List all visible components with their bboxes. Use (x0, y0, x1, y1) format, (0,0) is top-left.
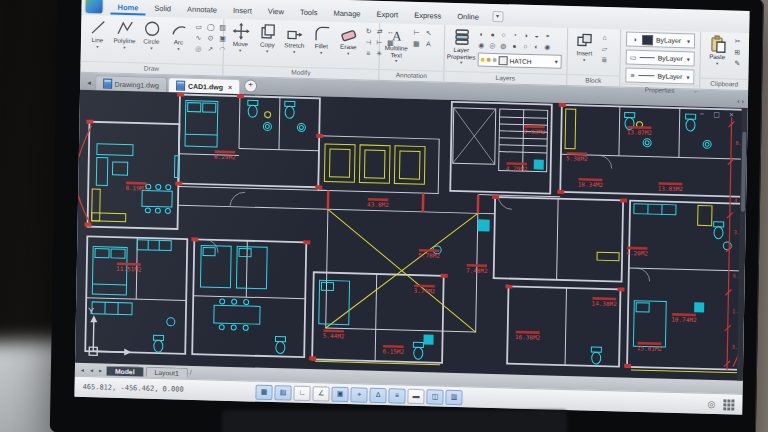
color-swatch (642, 34, 653, 44)
layout-nav-first-icon[interactable]: ◂ (79, 366, 86, 373)
panel-properties: ◑ByLayer▼▭ByLayer▼≡ByLayer▼ Properties ⌐ (620, 29, 701, 88)
match-properties-icon[interactable]: ✎ (732, 58, 743, 68)
status-toggle-group: ▦▤∟∠▣⌖∆≡▬◫▥ (256, 384, 463, 405)
snap-toggle[interactable]: ▦ (256, 384, 273, 399)
chevron-down-icon: ▾ (293, 50, 295, 54)
chevron-down-icon: ▾ (150, 46, 152, 50)
arc-button[interactable]: Arc▾ (165, 19, 193, 64)
layer-dropdown[interactable]: HATCH ▼ (478, 53, 562, 69)
dwg-file-icon (176, 80, 185, 90)
application-window: HomeSolidAnnotateInsertViewToolsManageEx… (74, 0, 749, 415)
layer-walk-icon[interactable]: ◍ (498, 41, 509, 51)
panel-label-block: Block (567, 74, 619, 86)
panel-clipboard: Paste▾ ✂⊞✎ Clipboard (700, 32, 749, 90)
panel-label-properties: Properties ⌐ (620, 83, 699, 95)
linetype-swatch (639, 57, 654, 58)
spline-icon[interactable]: ∿ (193, 33, 204, 43)
cut-icon[interactable]: ✂ (732, 36, 743, 46)
donut-icon[interactable]: ◎ (193, 44, 204, 54)
layer-thaw-icon[interactable]: ◓ (542, 31, 553, 41)
ellipse-icon[interactable]: ◯ (205, 22, 216, 32)
chevron-down-icon: ▼ (685, 74, 690, 80)
rectangle-icon[interactable]: ▭ (193, 22, 204, 32)
menu-tab-annotate[interactable]: Annotate (180, 2, 224, 17)
dyn-toggle[interactable]: ≡ (389, 388, 406, 403)
area-label: 8.93M2 (523, 128, 545, 136)
chevron-down-icon: ▾ (583, 58, 585, 62)
panel-annotation: AMultiline Text▾ ⊢↖▦A Annotation (379, 23, 445, 82)
chevron-down-icon: ▾ (395, 59, 397, 63)
layout-tab-model[interactable]: Model (106, 365, 144, 376)
chevron-down-icon: ▾ (347, 52, 349, 56)
current-layer-name: HATCH (510, 57, 532, 65)
menu-tab-tools[interactable]: Tools (293, 6, 325, 21)
layer-merge-icon[interactable]: ○ (520, 42, 531, 52)
panel-label-clipboard: Clipboard (700, 78, 748, 90)
panel-layers: Layer Properties▾ ◐●○◔◑◒◓◉◎◍●○◐◉ HATCH ▼ (444, 25, 568, 85)
layer-previous-icon[interactable]: ◎ (487, 41, 498, 51)
circle-icon (143, 19, 161, 37)
new-document-button[interactable]: + (244, 79, 257, 92)
rotate-icon[interactable]: ↻ (363, 26, 374, 36)
furniture-cyan-layer (91, 96, 733, 367)
leader-icon[interactable]: ↖ (423, 28, 434, 38)
area-label: 4.29M2 (506, 165, 528, 173)
area-label: 5.44M2 (323, 332, 345, 340)
area-labels-layer: 43.8M28.93M213.07M25.38M24.29M218.34M213… (115, 112, 701, 363)
dwg-file-icon (103, 78, 112, 88)
laptop-hinge (222, 410, 567, 432)
svg-text:A: A (391, 28, 401, 43)
area-label: 5.38M2 (566, 154, 588, 162)
area-label: 8.19M2 (125, 184, 147, 192)
area-label: 43.8M2 (367, 200, 389, 208)
polyline-icon (116, 19, 134, 37)
copy-icon (258, 23, 276, 41)
drawing-canvas[interactable]: − ◻ × (75, 90, 748, 381)
table-icon[interactable]: ▦ (411, 39, 422, 49)
ribbon-options-icon[interactable]: ▾ (492, 11, 503, 22)
layer-state-icon[interactable]: ● (509, 41, 520, 51)
layer-bulb-icon (481, 58, 485, 62)
chevron-down-icon: ▾ (96, 45, 98, 49)
panel-draw: Line▾Polyline▾Circle▾Arc▾ ▭◯▨∿⊙▣◎↗◠ Draw (80, 15, 224, 76)
line-icon (89, 18, 107, 36)
menu-tab-export[interactable]: Export (369, 8, 405, 23)
construction-line-icon[interactable]: ↗ (205, 44, 216, 54)
ortho-toggle[interactable]: ∟ (294, 385, 311, 400)
ducs-toggle[interactable]: ∆ (370, 387, 387, 402)
menu-tab-insert[interactable]: Insert (226, 4, 259, 19)
chevron-down-icon: ▾ (177, 47, 179, 51)
chevron-down-icon: ▼ (686, 56, 691, 62)
insert-button[interactable]: Insert▾ (570, 30, 598, 75)
area-label: 10.74M2 (671, 316, 697, 324)
app-logo-icon[interactable] (85, 0, 102, 13)
area-label: 7.48M2 (466, 266, 488, 274)
linetype-icon: ▭ (630, 53, 637, 62)
area-label: 18.34M2 (578, 180, 604, 188)
area-label: 3.74M2 (414, 287, 436, 295)
polar-toggle[interactable]: ∠ (313, 386, 330, 401)
fixtures-yellow-layer (89, 96, 744, 373)
tab-nav-left-icon[interactable]: ◂ (84, 79, 94, 90)
etrack-toggle[interactable]: ⌖ (351, 387, 368, 402)
layer-color-swatch (499, 56, 508, 65)
menu-tab-solid[interactable]: Solid (147, 2, 178, 17)
linetype-swatch (639, 75, 655, 76)
copy-clip-icon[interactable]: ⊞ (732, 47, 743, 57)
menu-tab-express[interactable]: Express (407, 9, 448, 24)
point-icon[interactable]: ⊙ (205, 33, 216, 43)
block-attributes-icon[interactable]: ≣ (599, 55, 610, 65)
polyline-button[interactable]: Polyline▾ (111, 18, 139, 63)
tpy-toggle[interactable]: ◫ (427, 389, 444, 404)
panel-label-annotation: Annotation (379, 69, 443, 82)
property-dropdown-2[interactable]: ≡ByLayer▼ (625, 68, 694, 85)
fillet-icon (312, 24, 330, 42)
floor-plan-drawing: 43.8M28.93M213.07M25.38M24.29M218.34M213… (75, 90, 748, 381)
layout-tab-layout1[interactable]: Layout1 (145, 366, 187, 377)
stretch-button[interactable]: Stretch▾ (281, 22, 309, 67)
stretch-icon (285, 23, 303, 41)
chevron-down-icon: ▾ (460, 61, 462, 65)
minimize-icon[interactable]: − (700, 110, 705, 119)
mtext-icon: A (387, 26, 405, 44)
drawing-window-controls: − ◻ × (700, 110, 734, 120)
circle-button[interactable]: Circle▾ (138, 18, 166, 63)
grid-toggle[interactable]: ▤ (275, 385, 292, 400)
close-tab-icon[interactable]: × (228, 83, 232, 90)
layer-properties-button[interactable]: Layer Properties▾ (447, 27, 475, 72)
area-label: 15.81M2 (637, 344, 663, 352)
area-label: 5.78M2 (418, 251, 440, 259)
laptop-bezel: HomeSolidAnnotateInsertViewToolsManageEx… (50, 0, 764, 432)
chevron-down-icon: ▼ (554, 59, 559, 65)
restore-icon[interactable]: ◻ (713, 110, 720, 119)
menu-tab-online[interactable]: Online (450, 10, 486, 25)
chevron-down-icon: ▾ (716, 62, 718, 66)
layer-properties-icon (452, 28, 470, 46)
esnap-toggle[interactable]: ▣ (332, 386, 349, 401)
trim-icon[interactable]: ⊣ (363, 37, 374, 47)
erase-button[interactable]: Erase▾ (334, 24, 362, 69)
linear-dimension-icon[interactable]: ⊢ (411, 28, 422, 38)
qp-toggle[interactable]: ▥ (445, 389, 462, 404)
paste-icon (708, 35, 726, 53)
workspace-grid-icon[interactable] (723, 399, 734, 410)
multiline-text-button[interactable]: AMultiline Text▾ (382, 25, 410, 70)
chevron-down-icon: ▾ (123, 45, 125, 49)
tab-scroll-icons[interactable]: ‹ › (737, 98, 744, 108)
area-label: 6.15M2 (382, 347, 404, 355)
area-label: 6.29M2 (214, 153, 236, 161)
offset-icon[interactable]: ≡ (363, 48, 374, 58)
layer-lock-icon[interactable]: ◔ (509, 30, 520, 40)
arc-icon (170, 20, 188, 38)
layer-freeze-icon[interactable]: ○ (498, 30, 509, 40)
layer-match-icon[interactable]: ◉ (476, 41, 487, 51)
property-dropdown-1[interactable]: ▭ByLayer▼ (626, 50, 695, 67)
ucs-icon: Y (83, 305, 134, 358)
insert-icon (575, 31, 593, 49)
chevron-down-icon: ▾ (320, 51, 322, 55)
menu-tab-home[interactable]: Home (110, 1, 145, 16)
menu-tab-manage[interactable]: Manage (326, 6, 367, 21)
chevron-down-icon: ▼ (686, 38, 691, 44)
layer-current-icon[interactable]: ◉ (542, 42, 553, 52)
text-style-icon[interactable]: A (423, 39, 434, 49)
dialog-launcher-icon[interactable]: ⌐ (695, 87, 699, 96)
coordinates-readout: 465.812, -456.462, 0.000 (83, 383, 184, 394)
area-label: 13.83M2 (658, 185, 684, 193)
layout-nav-prev-icon[interactable]: ◂ (88, 366, 95, 373)
svg-text:Y: Y (88, 306, 94, 316)
area-label: 14.38M2 (592, 300, 618, 308)
create-block-icon[interactable]: ⌂ (599, 33, 610, 43)
layout-tab-edge: / (190, 369, 192, 376)
panel-modify: Move▾Copy▾Stretch▾Fillet▾Erase▾ ↻⇄↔⊣⊢▦≡✳… (223, 19, 380, 80)
layer-sun-icon (487, 58, 491, 62)
layer-delete-icon[interactable]: ◐ (531, 42, 542, 52)
area-label: 16.38M2 (515, 333, 541, 341)
color-wheel-icon: ◑ (630, 35, 639, 44)
layout-nav-next-icon[interactable]: ▸ (97, 366, 104, 373)
copy-button[interactable]: Copy▾ (254, 22, 282, 67)
layer-isolate-icon[interactable]: ● (487, 30, 498, 40)
lwt-toggle[interactable]: ▬ (408, 388, 425, 403)
area-label: 11.51M2 (116, 265, 142, 273)
layer-unlock-icon[interactable]: ◑ (520, 31, 531, 41)
edit-block-icon[interactable]: ▱ (599, 44, 610, 54)
area-label: 4.20M2 (626, 249, 648, 257)
panel-block: Insert▾ ⌂▱≣ Block (567, 28, 621, 86)
layer-on-icon[interactable]: ◒ (531, 31, 542, 41)
move-button[interactable]: Move▾ (227, 21, 255, 66)
property-dropdown-0[interactable]: ◑ByLayer▼ (626, 32, 695, 49)
chevron-down-icon: ▾ (266, 49, 268, 53)
paste-button[interactable]: Paste▾ (703, 34, 731, 79)
area-label: 13.07M2 (627, 128, 653, 136)
fillet-button[interactable]: Fillet▾ (307, 23, 335, 68)
chevron-down-icon: ▾ (239, 49, 241, 53)
erase-icon (339, 25, 357, 43)
canvas-scrollbar-thumb[interactable] (741, 132, 746, 212)
menu-tab-view[interactable]: View (261, 5, 291, 20)
annotation-scale-icon[interactable]: ◎ (707, 399, 715, 409)
move-icon (231, 22, 249, 40)
line-button[interactable]: Line▾ (84, 17, 112, 62)
layer-off-icon[interactable]: ◐ (476, 30, 487, 40)
close-icon[interactable]: × (729, 110, 734, 119)
layer-lock-small-icon (493, 58, 497, 62)
lineweight-icon: ≡ (629, 71, 636, 80)
